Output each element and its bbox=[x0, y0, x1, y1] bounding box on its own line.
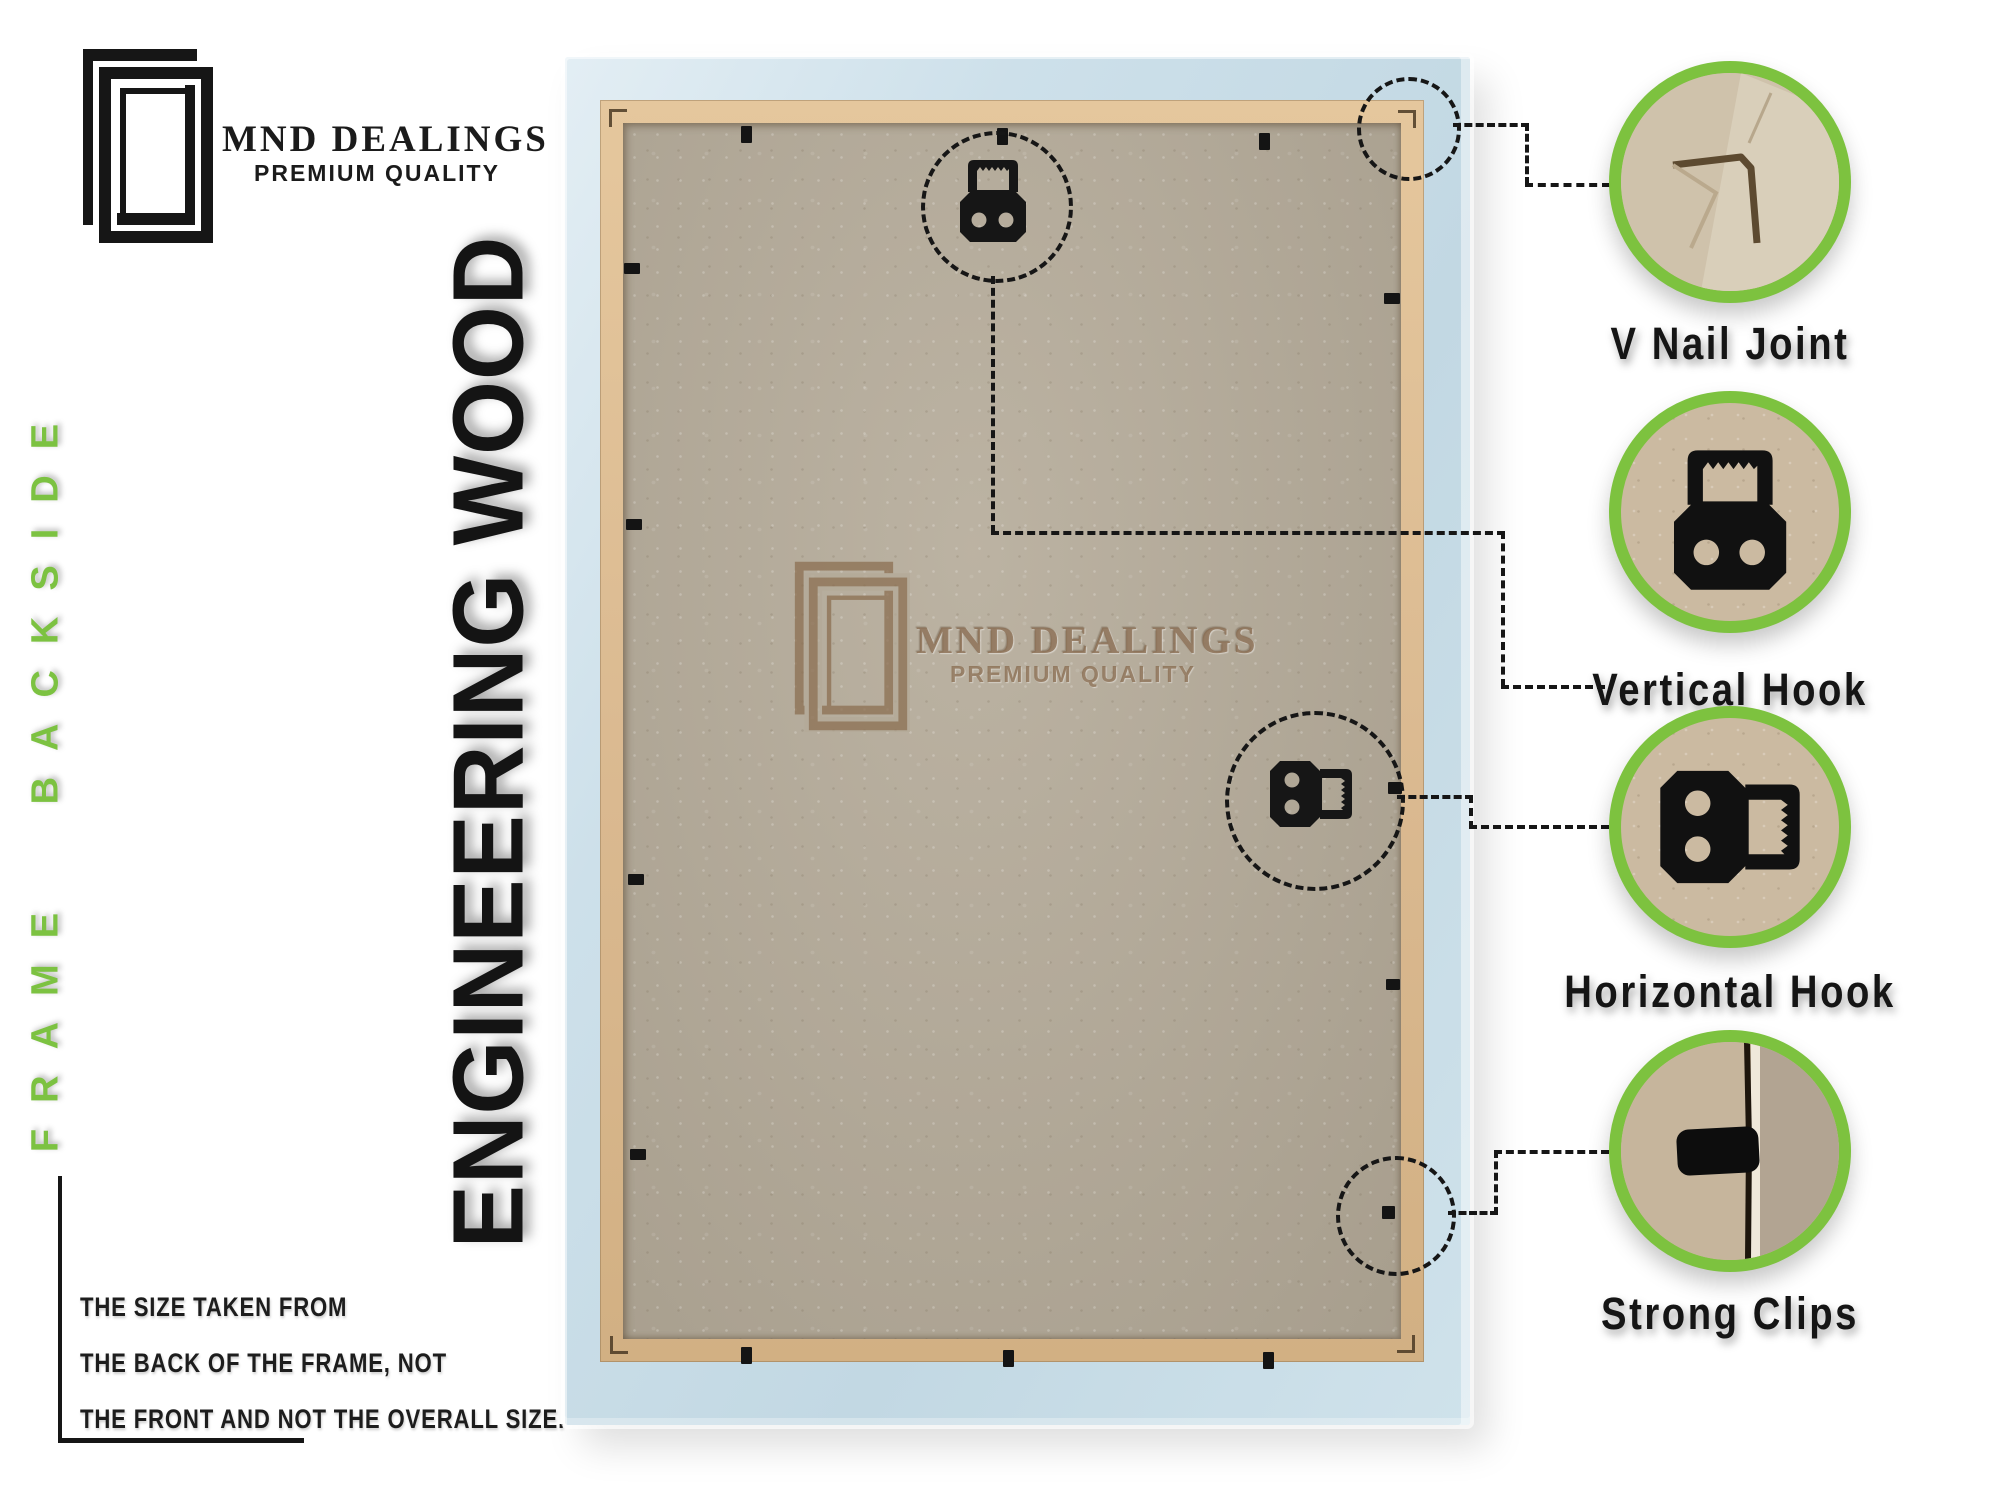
clip-top-1 bbox=[741, 126, 752, 143]
clip-bottom-2 bbox=[1003, 1350, 1014, 1367]
watermark-brand-tagline: PREMIUM QUALITY bbox=[950, 661, 1196, 688]
frame-backside-label: FRAME BACKSIDE bbox=[25, 398, 68, 1152]
brand-frames-icon bbox=[82, 48, 214, 244]
callout-label-v-nail-joint: V Nail Joint bbox=[1611, 318, 1850, 370]
connector-clip-seg2 bbox=[1494, 1150, 1498, 1215]
clip-bottom-1 bbox=[741, 1347, 752, 1364]
clip-right-1 bbox=[1384, 293, 1400, 304]
vertical-hook-photo bbox=[1621, 403, 1839, 621]
brand-name: MND DEALINGS bbox=[222, 118, 549, 161]
note-bracket-vertical bbox=[58, 1176, 62, 1440]
callout-label-strong-clips: Strong Clips bbox=[1601, 1288, 1859, 1340]
connector-clip-seg3 bbox=[1494, 1150, 1609, 1154]
size-note-line-2: THE BACK OF THE FRAME, NOT bbox=[80, 1348, 447, 1379]
connector-vhook-seg1 bbox=[991, 276, 995, 533]
callout-photo-strong-clips bbox=[1609, 1030, 1851, 1272]
product-infographic: MND DEALINGS PREMIUM QUALITY FRAME BACKS… bbox=[0, 0, 2000, 1500]
clip-bottom-3 bbox=[1263, 1352, 1274, 1369]
callout-label-horizontal-hook: Horizontal Hook bbox=[1564, 966, 1896, 1018]
connector-vnail-seg1 bbox=[1453, 123, 1529, 127]
watermark-brand-name: MND DEALINGS bbox=[916, 618, 1259, 663]
clip-left-1 bbox=[624, 263, 640, 274]
clip-left-4 bbox=[630, 1149, 646, 1160]
connector-vhook-seg2 bbox=[991, 531, 1505, 535]
note-bracket-horizontal bbox=[58, 1438, 304, 1443]
vnail-mark-bottom-right bbox=[1397, 1335, 1415, 1353]
v-nail-joint-photo bbox=[1621, 73, 1839, 291]
callout-photo-vertical-hook bbox=[1609, 391, 1851, 633]
horizontal-hook-highlight-circle bbox=[1225, 711, 1405, 891]
clip-top-3 bbox=[1259, 133, 1270, 150]
connector-clip-seg1 bbox=[1448, 1211, 1498, 1215]
strong-clip-highlight-circle bbox=[1336, 1156, 1456, 1276]
connector-hhook-seg3 bbox=[1469, 825, 1609, 829]
connector-vhook-seg3 bbox=[1501, 531, 1505, 687]
engineering-wood-label: ENGINEERING WOOD bbox=[432, 236, 547, 1249]
callout-photo-horizontal-hook bbox=[1609, 706, 1851, 948]
connector-vnail-seg2 bbox=[1525, 123, 1529, 185]
connector-hhook-seg2 bbox=[1469, 795, 1473, 829]
clip-left-3 bbox=[628, 874, 644, 885]
horizontal-hook-photo bbox=[1621, 718, 1839, 936]
size-note-line-1: THE SIZE TAKEN FROM bbox=[80, 1292, 347, 1323]
vnail-mark-top-left bbox=[609, 109, 627, 127]
clip-left-2 bbox=[626, 519, 642, 530]
corner-joint-highlight-circle bbox=[1357, 77, 1461, 181]
watermark-frames-icon bbox=[792, 560, 910, 732]
strong-clips-photo bbox=[1621, 1042, 1839, 1260]
connector-vnail-seg3 bbox=[1525, 183, 1610, 187]
callout-photo-v-nail-joint bbox=[1609, 61, 1851, 303]
vertical-hook-highlight-circle bbox=[921, 131, 1073, 283]
brand-tagline: PREMIUM QUALITY bbox=[254, 160, 500, 187]
clip-right-3 bbox=[1386, 979, 1400, 990]
connector-hhook-seg1 bbox=[1397, 795, 1473, 799]
connector-vhook-seg4 bbox=[1501, 685, 1605, 689]
vnail-mark-bottom-left bbox=[610, 1336, 628, 1354]
size-note-line-3: THE FRONT AND NOT THE OVERALL SIZE. bbox=[80, 1404, 565, 1435]
